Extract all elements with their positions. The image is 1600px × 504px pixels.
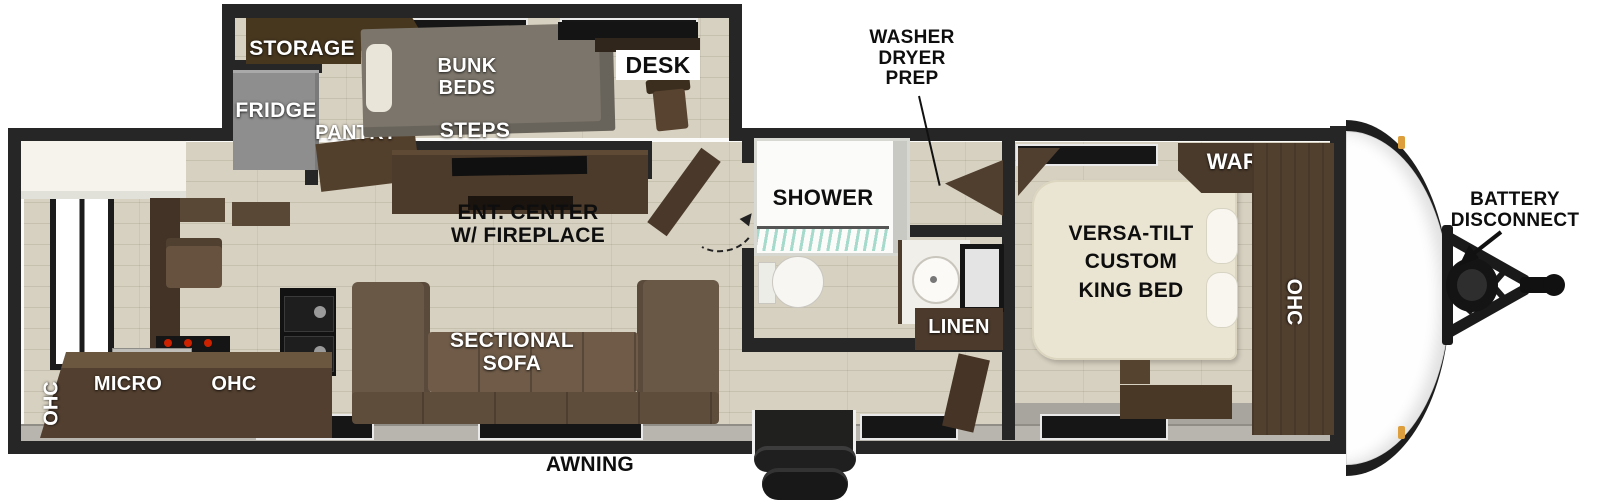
main-bottom-wall (8, 441, 1354, 454)
clearance-light-top (1398, 136, 1405, 149)
desk-chair-seat (653, 88, 689, 131)
fridge-label: FRIDGE (230, 100, 322, 123)
bunk-slideout-right-wall (729, 4, 742, 141)
tongue-jack-hub (1457, 269, 1487, 301)
burner-3 (204, 339, 212, 347)
bunk-ladder (366, 44, 392, 112)
bath-left-wall-upper (742, 141, 754, 163)
shower-glass (757, 226, 889, 251)
oven-knob-1 (314, 306, 326, 318)
king-bed-label: VERSA-TILT CUSTOM KING BED (1038, 220, 1224, 305)
washer-dryer-prep-label: WASHER DRYER PREP (856, 28, 968, 90)
battery-disconnect-label: BATTERY DISCONNECT (1430, 190, 1600, 231)
arrow-head (1459, 245, 1479, 266)
sofa-label: SECTIONAL SOFA (432, 330, 592, 375)
clearance-light-bottom (1398, 426, 1405, 439)
dinette-chair (166, 238, 222, 288)
washer-closet-bottom-wall (896, 225, 1015, 237)
bedroom-ohc-label: OHC (1281, 279, 1305, 326)
bunk-slideout-top-wall (222, 4, 742, 18)
vanity-faucet (930, 276, 937, 283)
steps-label: STEPS (430, 120, 520, 143)
bedroom-ohc-label-wrap: OHC (1272, 268, 1314, 334)
ent-center-label: ENT. CENTER W/ FIREPLACE (430, 202, 626, 247)
entry-steps-lower (762, 468, 848, 500)
main-top-wall-left (8, 128, 235, 141)
kitchen-ohc-left-label: OHC (41, 381, 64, 425)
rear-left-wall (8, 128, 21, 454)
awning-label: AWNING (540, 454, 640, 477)
linen-label: LINEN (916, 317, 1002, 339)
bunk-beds-label: BUNK BEDS (412, 56, 522, 99)
arrow-shaft (1473, 232, 1501, 254)
kitchen-shelf-2 (232, 202, 290, 226)
storage-label: STORAGE (246, 38, 358, 61)
burner-1 (164, 339, 172, 347)
sofa-seat-row (352, 392, 719, 424)
bath-mirror (960, 244, 1004, 312)
burner-2 (184, 339, 192, 347)
desk-chair (645, 76, 694, 132)
bed-foot-bench (1120, 385, 1232, 419)
oven-door-upper (284, 296, 334, 332)
toilet-bowl (772, 256, 824, 308)
bed-foot-cube (1120, 360, 1150, 384)
floorplan-canvas: STORAGE FRIDGE PANTRY BUNK BEDS DESK STE… (0, 0, 1600, 504)
kitchen-counter-top (21, 141, 186, 199)
desk-label: DESK (616, 53, 700, 78)
battery-disconnect-arrow (1455, 228, 1519, 270)
micro-label: MICRO (86, 374, 170, 396)
kitchen-lower-cabinets (40, 352, 332, 438)
kitchen-ohc-right-label: OHC (202, 374, 266, 396)
tv (452, 156, 587, 176)
kitchen-ohc-left-label-wrap: OHC (42, 376, 74, 432)
shower-label: SHOWER (756, 186, 890, 210)
hitch-ball-mount (1543, 274, 1565, 296)
bath-left-wall-lower (742, 248, 754, 352)
